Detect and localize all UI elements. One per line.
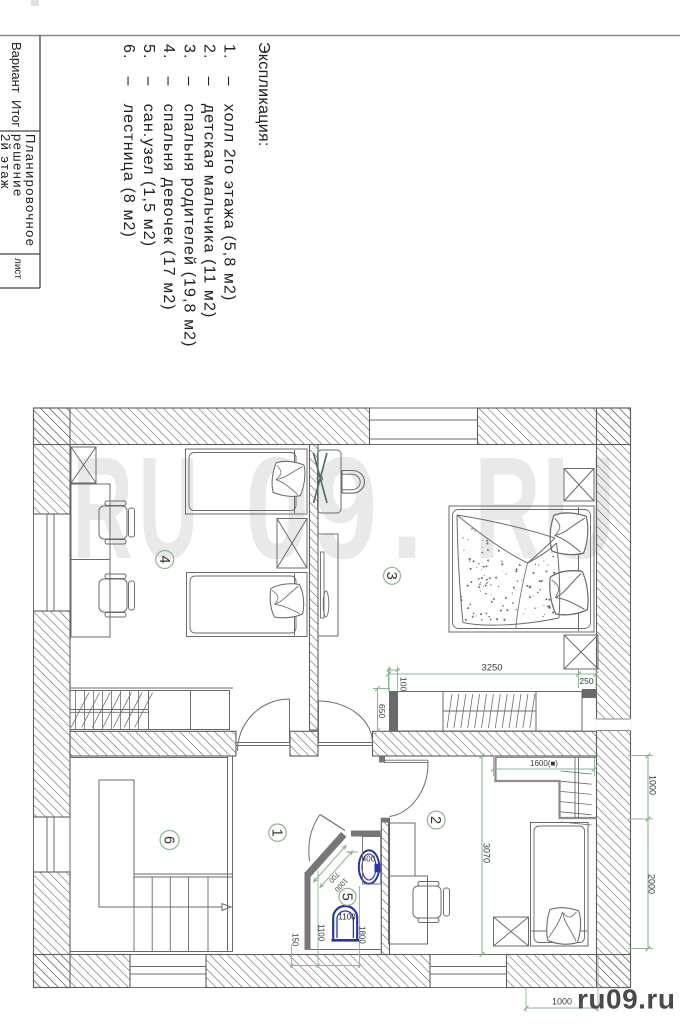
svg-text:R: R bbox=[73, 428, 133, 590]
svg-text:5: 5 bbox=[339, 893, 355, 901]
svg-text:400: 400 bbox=[362, 855, 376, 864]
svg-text:9: 9 bbox=[313, 427, 378, 589]
svg-text:1600(■): 1600(■) bbox=[530, 759, 558, 768]
svg-text:Вариант Итог: Вариант Итог bbox=[9, 42, 24, 127]
svg-text:150: 150 bbox=[291, 933, 300, 947]
svg-text:2й этаж: 2й этаж bbox=[0, 134, 13, 190]
svg-text:1000: 1000 bbox=[648, 775, 658, 795]
svg-text:250: 250 bbox=[579, 676, 593, 686]
svg-text:1. – холл 2го этажа (5,8 м2): 1. – холл 2го этажа (5,8 м2) bbox=[221, 44, 238, 301]
svg-text:2000: 2000 bbox=[647, 874, 657, 894]
svg-text:4. – спальня девочек (17 м2): 4. – спальня девочек (17 м2) bbox=[160, 44, 177, 311]
svg-text:100: 100 bbox=[399, 677, 409, 691]
svg-text:1100: 1100 bbox=[338, 913, 356, 922]
svg-text:6: 6 bbox=[161, 836, 177, 844]
svg-text:650: 650 bbox=[377, 704, 387, 718]
svg-text:U: U bbox=[139, 428, 199, 590]
svg-text:R: R bbox=[475, 426, 541, 589]
svg-text:4: 4 bbox=[156, 555, 172, 563]
svg-text:Экспликация:: Экспликация: bbox=[255, 42, 272, 147]
svg-text:1800: 1800 bbox=[357, 926, 366, 944]
svg-text:1100: 1100 bbox=[317, 924, 326, 942]
svg-text:700: 700 bbox=[327, 870, 340, 883]
svg-text:3: 3 bbox=[383, 572, 399, 580]
svg-text:3070: 3070 bbox=[482, 843, 492, 863]
svg-text:1: 1 bbox=[269, 829, 285, 837]
svg-text:3. – спальня родителей (19,8 м: 3. – спальня родителей (19,8 м2) bbox=[180, 44, 197, 348]
svg-text:лист: лист bbox=[12, 258, 23, 279]
svg-text:ru09.ru: ru09.ru bbox=[577, 984, 675, 1015]
svg-text:3250: 3250 bbox=[481, 663, 502, 674]
svg-text:2. – детская мальчика (11 м2): 2. – детская мальчика (11 м2) bbox=[200, 44, 217, 318]
svg-text:6. – лестница (8 м2): 6. – лестница (8 м2) bbox=[120, 44, 137, 238]
svg-text:5. – сан.узел (1,5 м2): 5. – сан.узел (1,5 м2) bbox=[140, 44, 157, 247]
svg-text:.: . bbox=[391, 427, 423, 589]
svg-text:1000: 1000 bbox=[552, 997, 572, 1007]
svg-text:2: 2 bbox=[427, 816, 443, 824]
